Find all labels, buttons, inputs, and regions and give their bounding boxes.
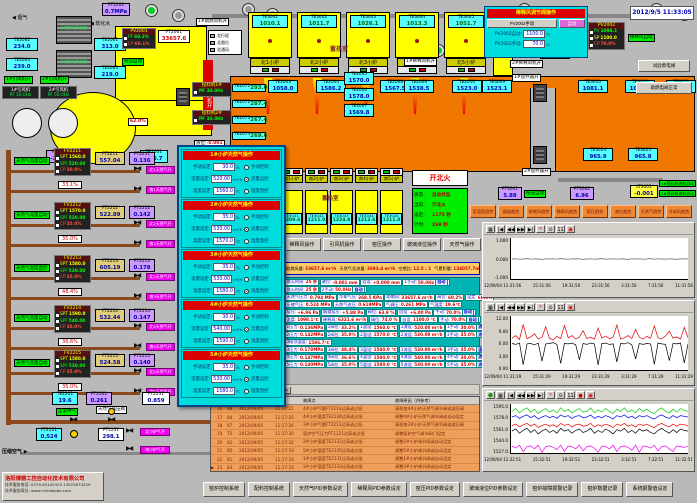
temp-setpoint-input[interactable]: 1580.0 bbox=[213, 387, 235, 395]
stirrer1-label: 1#搅拌器开 bbox=[512, 74, 541, 82]
air-valve-actuator-icon bbox=[70, 430, 78, 438]
parameter-row: 5压力:0.140MPa5阀位:35.0%5温设:1580.0 ℃5流设:530… bbox=[285, 361, 479, 368]
burner-on-icon bbox=[458, 68, 465, 72]
parameter-row: 窑压:+6.96 Pa烟道窑压:+5.88 Pa阀位:63.9 %自设:+6.0… bbox=[285, 309, 479, 316]
valve-position-box: 48.4% bbox=[58, 288, 82, 296]
burner-gas-section: 2#小炉天然气操作 手动设定:35.0% 流量设定:530.00m³/h 温度设… bbox=[181, 199, 282, 248]
chart-toolbar-icon[interactable]: ⊙ bbox=[546, 303, 555, 311]
setpoint-input[interactable]: 1100.0 bbox=[523, 30, 545, 38]
burner-chip[interactable]: 南5小炉 bbox=[380, 168, 403, 183]
pt-box: PT22150.140 bbox=[129, 354, 155, 367]
section-title: 2#小炉天然气操作 bbox=[183, 201, 280, 210]
valve-icon[interactable]: ▶◀ bbox=[134, 240, 139, 246]
te-box: TE20041586.2 bbox=[316, 80, 346, 93]
parameter-cell: 天然气压力:0.794 MPa bbox=[285, 294, 337, 301]
gas-line: 天然气温度直控 FV2213 SPT1580.0 SPF530.00 CP25.… bbox=[0, 255, 176, 309]
south-burner-air-label: 南小炉气开 bbox=[140, 446, 170, 454]
north-valve-open-label: 北1天然气开 bbox=[146, 166, 175, 174]
pt-box: PT22140.147 bbox=[129, 309, 155, 322]
chart-toolbar-icon[interactable]: 11 bbox=[556, 303, 565, 311]
chart-toolbar-icon[interactable]: 11 bbox=[566, 391, 575, 399]
temp-setpoint-input[interactable]: 1560.0 bbox=[213, 187, 235, 195]
radio-icon bbox=[244, 165, 249, 170]
radio-icon bbox=[244, 277, 249, 282]
chart-toolbar-icon[interactable]: ◀◀ bbox=[506, 225, 515, 233]
flow-setpoint-input[interactable]: 530.00 bbox=[211, 275, 232, 283]
kiln-pressure-auto-label: 窑压自动 bbox=[524, 190, 546, 198]
te-box: TE20101523.0 bbox=[452, 80, 482, 93]
te-box: TE20051570.0 bbox=[344, 72, 374, 85]
valve-icon[interactable]: ▶◀ bbox=[134, 220, 139, 226]
chart2-yaxis: 12.009.006.003.000.00 bbox=[484, 316, 508, 371]
radio-manual-control[interactable]: 手动控制 bbox=[242, 211, 281, 223]
regenerator-column: TE30441212.6 bbox=[355, 190, 378, 234]
flow-setpoint-input[interactable]: 520.00 bbox=[211, 175, 232, 183]
burner-off-icon bbox=[321, 68, 328, 72]
radio-manual-control[interactable]: 手动控制 bbox=[242, 311, 281, 323]
dilution-fan1-label: 1#稀释风机开 bbox=[404, 58, 437, 66]
trend-button[interactable]: 天然气趋势 bbox=[638, 205, 664, 218]
north-valve-open-label: 北3天然气开 bbox=[146, 273, 175, 281]
chart-toolbar-icon[interactable]: ⊙ bbox=[556, 391, 565, 399]
te2201-box: TE220119.6 bbox=[52, 392, 78, 405]
radio-flow-auto[interactable]: 流量自控 bbox=[242, 223, 281, 235]
chart-toolbar-icon[interactable]: |◀ bbox=[496, 303, 505, 311]
parameter-cell: 换火时间:25 秒 bbox=[285, 279, 320, 286]
fan-run-label: 2#引风机开 bbox=[40, 76, 69, 84]
fan-controller[interactable]: 1#引风机PF 50.0Hz bbox=[2, 86, 39, 99]
temp-setpoint-input[interactable]: 1570.0 bbox=[213, 237, 235, 245]
parameter-cell: 压缩气压:0.524 MPa bbox=[285, 301, 333, 308]
chart-toolbar-icon[interactable]: ▦ bbox=[496, 391, 505, 399]
north-valve-open-label: 北5天然气开 bbox=[146, 368, 175, 376]
popup-title: 稀释风调节阀操作 bbox=[487, 9, 585, 18]
prv-valve-icon[interactable]: ▶◀ bbox=[108, 417, 113, 423]
feed-auto-label: 2#投料机进料自动 bbox=[659, 190, 696, 197]
trend-button[interactable]: 助燃风趋势 bbox=[526, 205, 552, 218]
reversal-state-icon bbox=[210, 48, 215, 52]
gas-mode-label: 天然气流量自动 bbox=[14, 359, 50, 367]
parameter-cell: 手动:70.0%自动 bbox=[433, 309, 476, 316]
te-box: TE2071293.0 bbox=[232, 84, 266, 92]
nav-button[interactable]: 窑炉故障报警记录 bbox=[526, 482, 578, 497]
kiln-pressure-auto-label: 窑压自动 bbox=[122, 58, 144, 66]
nav-button[interactable]: 玻璃液位PID参数设定 bbox=[463, 482, 523, 497]
gas-flow-controller[interactable]: FV2214 SPT1590.0 SPF540.00 CP30.0% bbox=[54, 305, 91, 333]
burner-on-icon bbox=[383, 170, 390, 174]
parameter-cell: 自设:1100.0 ℃ bbox=[400, 316, 438, 323]
heat-exchanger: 1#烟气换热器 bbox=[56, 16, 92, 44]
reversal-legend: 北行程北限位北通风 bbox=[208, 30, 242, 55]
gas-flow-controller[interactable]: FV2213 SPT1580.0 SPF530.00 CP25.0% bbox=[54, 255, 91, 283]
parameter-cell: 5温设:1580.0 ℃ bbox=[358, 361, 398, 368]
radio-manual-control[interactable]: 手动控制 bbox=[242, 261, 281, 273]
pt-box: PT22120.142 bbox=[129, 206, 155, 219]
valve-icon[interactable]: ▶◀ bbox=[134, 166, 139, 172]
section-title: 3#小炉天然气操作 bbox=[183, 251, 280, 260]
fan-run-label: 1#引风机开 bbox=[4, 76, 33, 84]
chart-toolbar-icon[interactable]: ▦ bbox=[486, 303, 495, 311]
chart2-plot[interactable] bbox=[510, 316, 688, 371]
section-title: 5#小炉天然气操作 bbox=[183, 351, 280, 360]
chart-toolbar-icon[interactable]: ▶▶ bbox=[516, 225, 525, 233]
burner-off-icon bbox=[293, 170, 300, 174]
radio-icon bbox=[244, 377, 249, 382]
reversal-state-icon bbox=[210, 41, 215, 45]
te-box: TE2072287.4 bbox=[232, 100, 266, 108]
valve-icon[interactable]: ▶◀ bbox=[134, 273, 139, 279]
parameter-cell: 冷却气压:268.5 KPa bbox=[337, 294, 384, 301]
flow-setpoint-input[interactable]: 530.00 bbox=[211, 375, 232, 383]
parameter-cell: 气调压:0.261 MPa bbox=[384, 301, 428, 308]
chart-toolbar-icon[interactable]: 11 bbox=[556, 225, 565, 233]
gas-flow-controller[interactable]: FV2211 SPT1560.0 SPF520.00 CP30.0% bbox=[54, 148, 91, 176]
burner-chip[interactable]: 北2小炉 bbox=[299, 58, 339, 74]
operation-button[interactable]: 天然气操作 bbox=[443, 238, 481, 251]
radio-icon bbox=[244, 177, 249, 182]
chart-toolbar-icon[interactable]: |◀ bbox=[496, 225, 505, 233]
manual-setpoint-input[interactable]: 35.0 bbox=[213, 263, 235, 271]
flow-setpoint-input[interactable]: 530.00 bbox=[211, 225, 232, 233]
valve-position-box: 35.0% bbox=[58, 235, 82, 243]
chart-toolbar-icon[interactable]: ● bbox=[576, 391, 585, 399]
chart-toolbar-icon[interactable]: ▶| bbox=[526, 225, 535, 233]
south-valve-open-label: 南3天然气开 bbox=[146, 293, 175, 301]
chart-toolbar-icon[interactable]: |◀ bbox=[506, 391, 515, 399]
burner-chip[interactable]: 北1小炉 bbox=[250, 58, 290, 74]
burner-on-icon bbox=[358, 170, 365, 174]
ft-box: FT2211557.04 bbox=[95, 152, 125, 165]
burner-chip[interactable]: 北5小炉 bbox=[446, 58, 486, 74]
burner-off-icon bbox=[318, 170, 325, 174]
pt3001-box: PT30015.88 bbox=[498, 187, 522, 200]
parameter-cell: 手动:70.0%自动 bbox=[438, 316, 481, 323]
lt3001-box: LT3001-0.001 bbox=[630, 185, 658, 198]
valve-icon[interactable]: ▶◀ bbox=[134, 186, 139, 192]
parameter-row: 3碹顶温度:1586.7℃ bbox=[285, 339, 479, 346]
fan-controller[interactable]: 2#引风机PF 50.0Hz bbox=[40, 86, 77, 99]
chart3-plot[interactable] bbox=[510, 404, 688, 454]
ft2121-box: FT21210.524 bbox=[36, 428, 62, 441]
parameter-cell: 1手动:50.0Hz自动 bbox=[402, 279, 449, 286]
parameter-cell: 阀位:60.2% bbox=[435, 294, 464, 301]
south-regen-label: 蓄热室 bbox=[322, 194, 339, 202]
burner-off-icon bbox=[343, 170, 350, 174]
company-name: 洛阳博德工控自动化技术有限公司 bbox=[5, 474, 101, 482]
burner-off-icon bbox=[393, 170, 400, 174]
parameter-cell: 天然气进压:0.619MPa bbox=[333, 301, 384, 308]
prv-actuator-icon bbox=[108, 408, 115, 415]
section-title: 4#小炉天然气操作 bbox=[183, 301, 280, 310]
radio-manual-control[interactable]: 手动控制 bbox=[242, 161, 281, 173]
parameter-cell: 5阀位:35.0% bbox=[326, 361, 358, 368]
fan-icon bbox=[172, 9, 185, 22]
flue-gas-label: ◀ 烟气 bbox=[12, 14, 27, 21]
chart3-toolbar: ☻▦|◀◀◀▶▶▶|*⊙11●▣ bbox=[484, 390, 693, 401]
feeder-controller[interactable]: 投料机1#PF 33.0Hz bbox=[192, 82, 232, 97]
alarm-row[interactable]: 2281 2012/09/0511:17:33 1#小炉温度TE2131过高或过… bbox=[211, 455, 479, 463]
chart-toolbar-icon[interactable]: * bbox=[536, 225, 545, 233]
burner-chip[interactable]: 南3小炉 bbox=[330, 168, 353, 183]
radio-icon bbox=[244, 315, 249, 320]
regenerator-column: TE30051051.7 bbox=[444, 12, 488, 58]
radio-temp-auto[interactable]: 温度直控 bbox=[242, 285, 281, 297]
chart1-plot[interactable] bbox=[510, 238, 688, 280]
parameter-cell: 2阀位:35.0% bbox=[326, 331, 358, 338]
alarm-row[interactable]: 1784 2012/09/0511:17:25 4#小炉温度TE2134过高或过… bbox=[211, 413, 479, 421]
gas-main-valve-icon[interactable]: ▶◀ bbox=[70, 417, 75, 423]
te-box: TE3024965.9 bbox=[583, 148, 613, 161]
radio-icon bbox=[244, 365, 249, 370]
alarm-row[interactable]: 1975 2012/09/0511:17:30 窑炉空气压力PT1121过高或过… bbox=[211, 430, 479, 438]
valve-icon[interactable]: ▶◀ bbox=[134, 293, 139, 299]
chart-toolbar-icon[interactable]: ▣ bbox=[586, 391, 595, 399]
nav-button[interactable]: 窑炉控制系统 bbox=[203, 482, 245, 497]
parameter-cell: 4温设:1590.0 ℃ bbox=[358, 354, 398, 361]
chart-toolbar-icon[interactable]: ▣ bbox=[566, 303, 575, 311]
nav-button[interactable]: 窑压PID参数设定 bbox=[410, 482, 460, 497]
pv2001-controller[interactable]: PV2001 PF60.2% CP60.1% bbox=[122, 28, 156, 49]
parameter-cell: 气温度:19.6℃ bbox=[428, 301, 462, 308]
radio-temp-auto[interactable]: 温度直控 bbox=[242, 235, 281, 247]
temp-setpoint-input[interactable]: 1580.0 bbox=[213, 287, 235, 295]
chart-toolbar-icon[interactable]: * bbox=[546, 391, 555, 399]
reversal-valve-normal-button[interactable]: 助燃电阀正常 bbox=[636, 82, 692, 94]
radio-temp-auto[interactable]: 温度直控 bbox=[242, 185, 281, 197]
radio-temp-auto[interactable]: 温度直控 bbox=[242, 335, 281, 347]
chart-toolbar-icon[interactable]: ▶| bbox=[526, 303, 535, 311]
burner-chip[interactable]: 南4小炉 bbox=[355, 168, 378, 183]
parameter-cell: 3压力:0.178MPa bbox=[285, 346, 326, 353]
burner-on-icon bbox=[333, 170, 340, 174]
nav-button[interactable]: 配料控制系统 bbox=[248, 482, 290, 497]
burner-chip[interactable]: 南2小炉 bbox=[305, 168, 328, 183]
parameter-row: 天然气压力:0.794 MPa冷却气压:268.5 KPa助燃风:33657.6… bbox=[285, 294, 479, 301]
stirrer2-motor-icon bbox=[533, 146, 547, 164]
trend-button[interactable]: 烟道趋势 bbox=[498, 205, 524, 218]
dilution-auto-label: 稀释风自动 bbox=[628, 34, 655, 42]
valve-icon[interactable]: ▶◀ bbox=[134, 388, 139, 394]
ft2001-box: FT200133657.6 bbox=[158, 30, 190, 43]
parameter-cell: 2手动:50.0Hz自动 bbox=[320, 286, 367, 293]
te-box: TE20071569.8 bbox=[344, 104, 374, 117]
alarm-row[interactable]: 2185 2012/09/0511:17:33 5#小炉温度TE2135过高或过… bbox=[211, 447, 479, 455]
te-box: TE30091523.1 bbox=[482, 80, 512, 93]
radio-icon bbox=[244, 239, 249, 244]
alarm-row[interactable]: 2082 2012/09/0511:17:32 2#小炉温度TE2132过高或过… bbox=[211, 439, 479, 447]
valve-icon[interactable]: ▶◀ bbox=[134, 323, 139, 329]
north-regen-label: 蓄热室 bbox=[330, 44, 348, 53]
gas-line: 天然气流量自动 FV2211 SPT1560.0 SPF520.00 CP30.… bbox=[0, 148, 176, 202]
gas-normal-label: 正常供气 bbox=[56, 408, 78, 416]
parameter-row: 2压力:0.142MPa2阀位:35.0%2温设:1570.0 ℃2流设:530… bbox=[285, 331, 479, 338]
pv2002-manual-button[interactable]: PV2002手动 bbox=[487, 19, 557, 28]
pt3002-box: PT30026.96 bbox=[570, 187, 594, 200]
chart2-xaxis: 12/09/04 11:31:2915:31:2919:31:2923:31:2… bbox=[484, 374, 693, 379]
trend-button[interactable]: 稀释风趋势 bbox=[554, 205, 580, 218]
parameter-cell: 3流设:530.00 m³/h bbox=[399, 346, 445, 353]
alarm-table: 故障点故障原因（供参考） 1698 2012/09/0511:17:21 4#小… bbox=[210, 396, 480, 472]
feed-auto-label: 1#投料机进料自动 bbox=[659, 180, 696, 187]
chart-toolbar-icon[interactable]: ⊙ bbox=[546, 225, 555, 233]
parameter-row: 温度:1098.1℃稀释风:6321.6 m³/h阀位:74.0 %自设:110… bbox=[285, 316, 479, 323]
chart-toolbar-icon[interactable]: ▶| bbox=[536, 391, 545, 399]
gas-line: 天然气流量自动 FV2212 SPT1570.0 SPF530.00 CP35.… bbox=[0, 202, 176, 256]
parameter-cell: 1压力:0.136MPa bbox=[285, 324, 326, 331]
north-valve-open-label: 北4天然气开 bbox=[146, 323, 175, 331]
chart-toolbar-icon[interactable]: ▣ bbox=[566, 225, 575, 233]
valve-icon[interactable]: ▶◀ bbox=[134, 368, 139, 374]
regenerator-column: TE30451211.8 bbox=[380, 190, 403, 234]
dilution-fan2-label: 2#稀释风机开 bbox=[510, 60, 543, 68]
chart-toolbar-icon[interactable]: ▶▶ bbox=[516, 303, 525, 311]
stirrer1-motor-icon bbox=[533, 84, 547, 102]
summary-bar: 助燃风量:33657.6 m³/h天然气总流量:2693.4 m³/h空燃比:1… bbox=[283, 262, 480, 275]
parameter-cell: 阀位:63.9 % bbox=[366, 309, 397, 316]
north-valve-open-label: 北2天然气开 bbox=[146, 220, 175, 228]
valve-position-box: 36.6% bbox=[58, 338, 82, 346]
feeder-motor-icon bbox=[176, 88, 190, 106]
operation-button[interactable]: 窑压操作 bbox=[363, 238, 401, 251]
radio-icon bbox=[244, 227, 249, 232]
temp-setpoint-input[interactable]: 1590.0 bbox=[213, 337, 235, 345]
parameter-cell: 自设:+6.00 Pa bbox=[397, 309, 433, 316]
chart-toolbar-icon[interactable]: ◀◀ bbox=[516, 391, 525, 399]
dilution-valve-popup: 稀释风调节阀操作 PV2002手动 自动 PV2002自动:1100.0℃PV2… bbox=[484, 6, 588, 58]
nav-button[interactable]: 天然气PID参数设定 bbox=[293, 482, 348, 497]
burner-on-icon bbox=[311, 68, 318, 72]
ft-box: FT2215524.58 bbox=[95, 354, 125, 367]
parameter-cell: 阀位:74.0 % bbox=[369, 316, 400, 323]
gas-mode-label: 天然气流量自动 bbox=[14, 314, 50, 322]
parameter-cell: 烟道窑压:+5.88 Pa bbox=[321, 309, 365, 316]
nav-button[interactable]: 系统报警值设定 bbox=[626, 482, 673, 497]
radio-icon bbox=[244, 215, 249, 220]
parameter-row: 4压力:0.147MPa4阀位:36.6%4温设:1590.0 ℃4流设:540… bbox=[285, 354, 479, 361]
chart1-xaxis: 12/09/04 11:31:5615:31:5619:31:5623:31:5… bbox=[484, 283, 693, 288]
air-valve-icon[interactable]: ▶◀ bbox=[126, 446, 131, 452]
chart-toolbar-icon[interactable]: ☻ bbox=[486, 391, 495, 399]
ft-box: FT2214532.44 bbox=[95, 309, 125, 322]
nav-button[interactable]: 稀释风PID参数设定 bbox=[351, 482, 406, 497]
parameter-cell: 换火时间:25 秒 bbox=[285, 286, 320, 293]
reversal-state-icon bbox=[210, 34, 215, 38]
radio-icon bbox=[244, 389, 249, 394]
radio-manual-control[interactable]: 手动控制 bbox=[242, 361, 281, 373]
radio-flow-auto[interactable]: 流量自控 bbox=[242, 273, 281, 285]
ft-box: FT2212522.89 bbox=[95, 206, 125, 219]
chart-toolbar-icon[interactable]: ▦ bbox=[486, 225, 495, 233]
pv2002-auto-button[interactable]: 自动 bbox=[559, 19, 585, 28]
parameter-cell: 3温设:1580.0 ℃ bbox=[358, 346, 398, 353]
heat-exchanger: 2#烟气换热器 bbox=[56, 50, 92, 78]
flow-setpoint-input[interactable]: 540.00 bbox=[211, 325, 232, 333]
feeder-controller[interactable]: 投料机2#PF 33.0Hz bbox=[192, 110, 232, 125]
gas-mode-label: 天然气流量自动 bbox=[14, 157, 50, 165]
parameter-cell: 2压力:0.142MPa bbox=[285, 331, 326, 338]
id-fan-2 bbox=[48, 108, 78, 138]
pv2002-controller[interactable]: PV2002 PV1098.1 SP1100.0 CP70.0% bbox=[588, 22, 625, 50]
alarm-row[interactable]: 1897 2012/09/0511:17:26 3#小炉气量FT2213过高或过… bbox=[211, 422, 479, 430]
manual-setpoint-input[interactable]: 35.0 bbox=[213, 363, 235, 371]
te-box: TE2074269.6 bbox=[232, 132, 266, 140]
pt-box: PT22130.178 bbox=[129, 259, 155, 272]
parameter-row: 压缩气压:0.524 MPa天然气进压:0.619MPa气调压:0.261 MP… bbox=[285, 301, 479, 308]
burner-gas-section: 4#小炉天然气操作 手动设定:30.0% 流量设定:540.00m³/h 温度设… bbox=[181, 299, 282, 348]
radio-flow-auto[interactable]: 流量自控 bbox=[242, 323, 281, 335]
manual-setpoint-input[interactable]: 30.0 bbox=[213, 313, 235, 321]
radio-icon bbox=[244, 339, 249, 344]
chart-toolbar-icon[interactable]: * bbox=[536, 303, 545, 311]
radio-icon bbox=[244, 189, 249, 194]
trend-button[interactable]: 冷却风趋势 bbox=[666, 205, 692, 218]
te-box: TE30101081.1 bbox=[578, 80, 608, 93]
regenerator-column: TE30011010.1 bbox=[248, 12, 292, 58]
flue-damper-position: 62.0% bbox=[128, 118, 148, 126]
te-box: TE2073267.4 bbox=[232, 116, 266, 124]
nav-button[interactable]: 窑炉数据记录 bbox=[581, 482, 623, 497]
radio-icon bbox=[244, 289, 249, 294]
trend-button[interactable]: 窑压趋势 bbox=[582, 205, 608, 218]
manual-setpoint-input[interactable]: 35.0 bbox=[213, 213, 235, 221]
chart1-yaxis: 1.0000.000-1.000 bbox=[484, 238, 508, 280]
gas-flow-controller[interactable]: FV2212 SPT1570.0 SPF530.00 CP35.0% bbox=[54, 202, 91, 230]
air-valve-icon[interactable]: ▶◀ bbox=[126, 428, 131, 434]
fan-icon bbox=[145, 4, 158, 17]
setpoint-input[interactable]: 70.0 bbox=[523, 40, 545, 48]
operation-button[interactable]: 稀释风操作 bbox=[283, 238, 321, 251]
stirrer2-label: 2#搅拌器开 bbox=[522, 168, 551, 176]
parameter-cell: 5流设:530.00 m³/h bbox=[399, 361, 445, 368]
te-box: TE3025965.8 bbox=[628, 148, 658, 161]
port-dot-icon bbox=[366, 39, 370, 43]
firing-status-panel: 状态:自动状态当前:开北火设定:1175 秒计时:269 秒 bbox=[412, 188, 468, 234]
parameter-cell: 1流设:520.00 m³/h bbox=[399, 324, 445, 331]
valve-icon[interactable]: ▶◀ bbox=[134, 343, 139, 349]
parameter-row: 换火时间:25 秒液位:-0.001 mm自设:+0.000 mm1手动:50.… bbox=[285, 279, 479, 286]
south-valve-open-label: 南1天然气开 bbox=[146, 186, 175, 194]
te-box: TE20061578.0 bbox=[344, 88, 374, 101]
alarm-row[interactable]: ▶2383 2012/09/0511:17:33 3#小炉温度TE2133过高或… bbox=[211, 464, 479, 472]
burner-off-icon bbox=[468, 68, 475, 72]
gas-flow-controller[interactable]: FV2215 SPT1580.0 SPF530.00 CP35.0% bbox=[54, 350, 91, 378]
ft-box: FT2213605.19 bbox=[95, 259, 125, 272]
radio-flow-auto[interactable]: 流量自控 bbox=[242, 373, 281, 385]
pt-box: PT22110.136 bbox=[129, 152, 155, 165]
operation-button[interactable]: 玻璃液位操作 bbox=[403, 238, 441, 251]
parameter-cell: 5压力:0.140MPa bbox=[285, 361, 326, 368]
chart3-xaxis: 12/09/04 11:32:5115:32:5119:32:5123:32:5… bbox=[484, 457, 693, 462]
burner-on-icon bbox=[409, 68, 416, 72]
burner-off-icon bbox=[272, 68, 279, 72]
gas-mode-label: 天然气流量自动 bbox=[14, 211, 50, 219]
regenerator-column: TE30041013.3 bbox=[395, 12, 439, 58]
parameter-cell: 助燃风:33657.6 m³/h bbox=[384, 294, 434, 301]
burner-gas-section: 5#小炉天然气操作 手动设定:35.0% 流量设定:530.00m³/h 温度设… bbox=[181, 349, 282, 398]
fire-direction-box[interactable]: 开北火 bbox=[412, 170, 468, 186]
operation-button[interactable]: 引风机操作 bbox=[323, 238, 361, 251]
manual-setpoint-input[interactable]: 30.0 bbox=[213, 163, 235, 171]
port-dot-icon bbox=[317, 39, 321, 43]
parameter-cell: 4流设:540.00 m³/h bbox=[399, 354, 445, 361]
radio-temp-auto[interactable]: 温度直控 bbox=[242, 385, 281, 397]
trend-button[interactable]: 液位趋势 bbox=[610, 205, 636, 218]
chart-toolbar-icon[interactable]: ▶▶ bbox=[526, 391, 535, 399]
trend-button[interactable]: 窑温度趋势 bbox=[470, 205, 496, 218]
test-reversal-valve-button[interactable]: 试验柴电阀 bbox=[638, 60, 690, 72]
radio-flow-auto[interactable]: 流量自控 bbox=[242, 173, 281, 185]
chart-toolbar-icon[interactable]: ◀◀ bbox=[506, 303, 515, 311]
